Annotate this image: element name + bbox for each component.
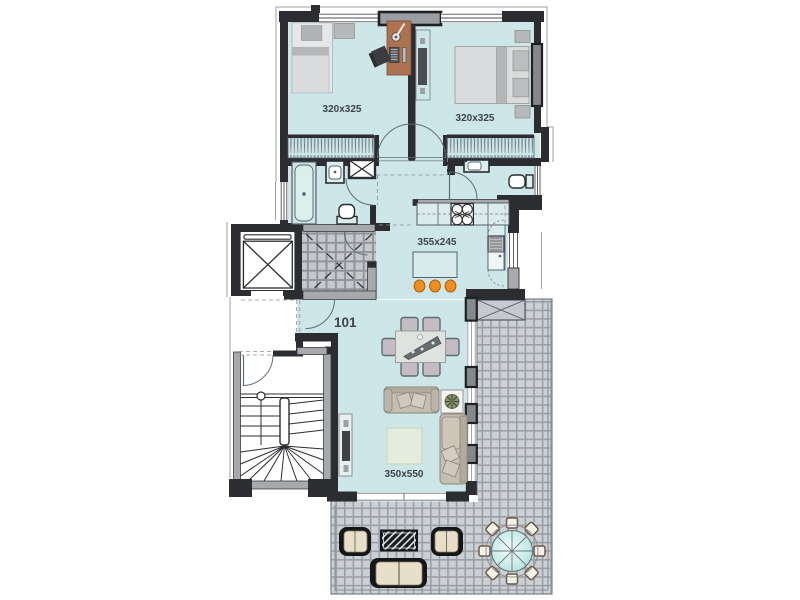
svg-text:350x550: 350x550: [385, 469, 424, 480]
svg-text:101: 101: [334, 315, 357, 330]
svg-text:320x325: 320x325: [456, 113, 495, 124]
svg-text:320x325: 320x325: [323, 104, 362, 115]
svg-text:355x245: 355x245: [418, 237, 457, 248]
